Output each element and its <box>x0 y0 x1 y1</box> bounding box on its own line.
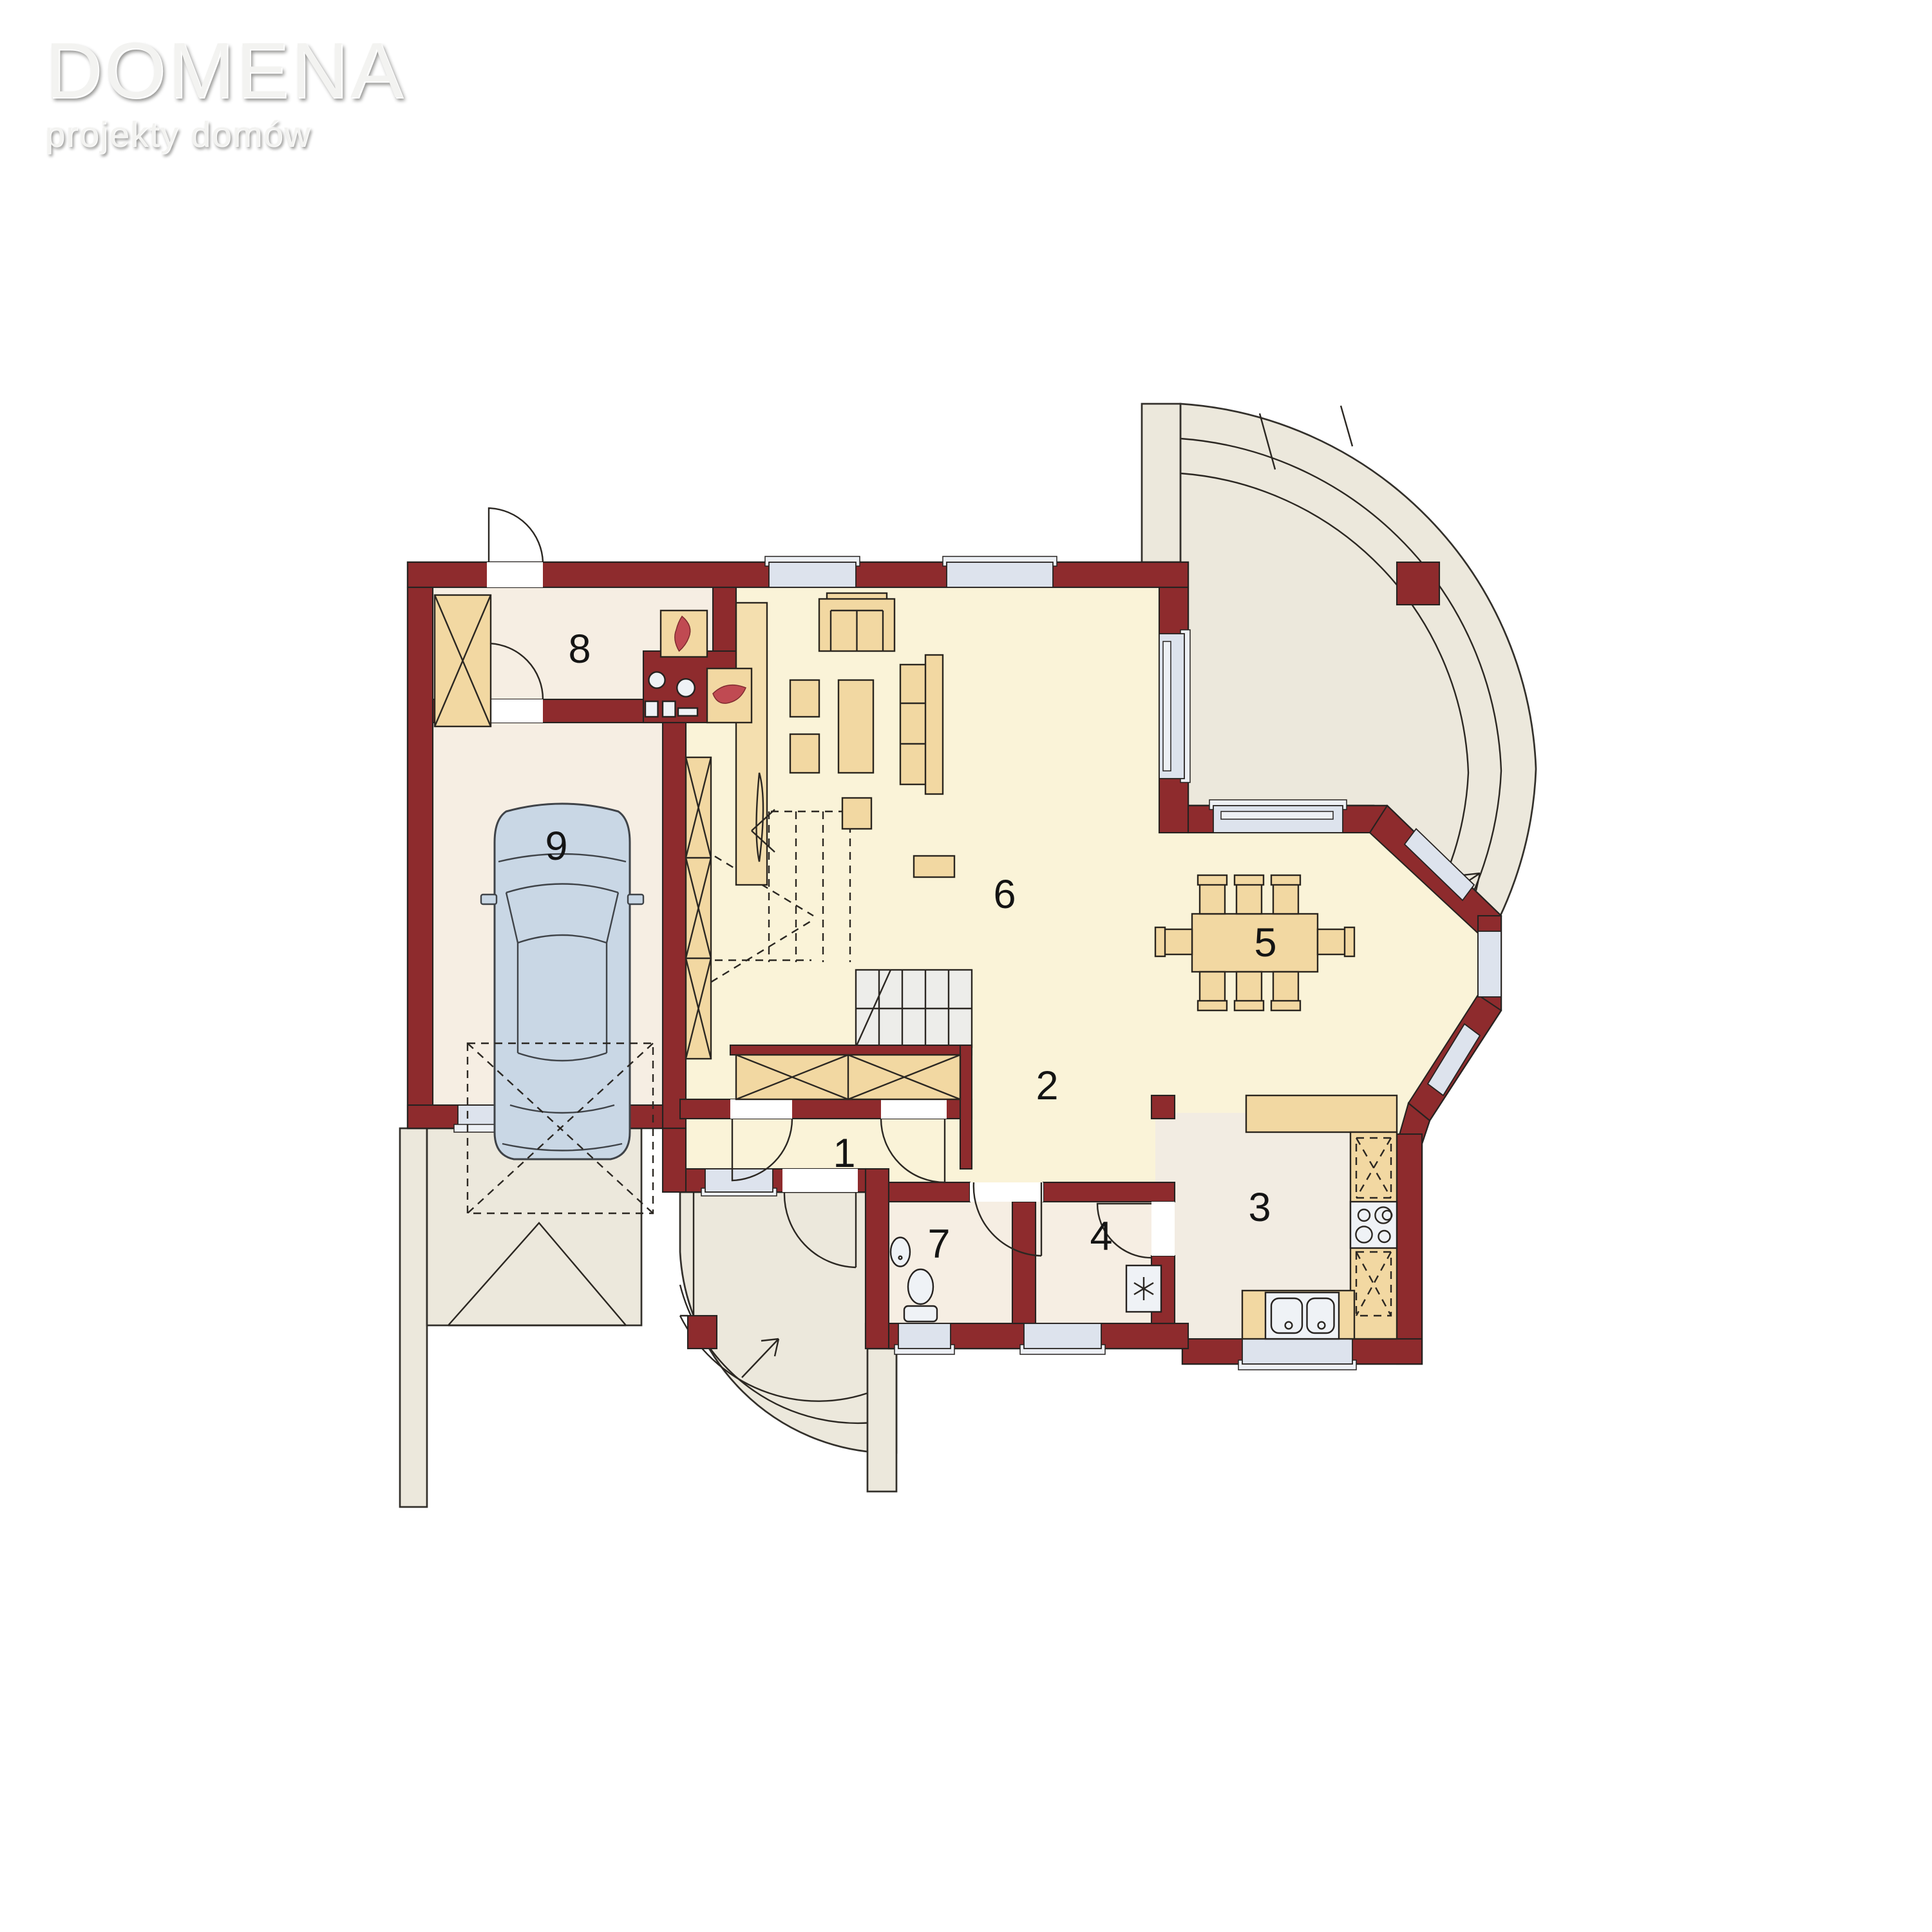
furnace-box <box>645 701 658 717</box>
wall-pantry-north <box>1043 1182 1175 1202</box>
kitchen-sink <box>1265 1293 1339 1339</box>
furnace-vent <box>678 708 697 716</box>
wardrobe-boilerroom <box>435 595 491 726</box>
driveway <box>400 1128 641 1507</box>
room-label-kitchen: 3 <box>1248 1185 1271 1230</box>
room-label-vestibule: 1 <box>833 1131 855 1176</box>
car-mirror <box>481 895 497 904</box>
wall-under-stairs <box>730 1045 972 1055</box>
wall-hall-west-pier <box>960 1045 972 1169</box>
wall-wc-west <box>866 1169 889 1349</box>
porch-pillar <box>867 1349 896 1492</box>
tv-bench <box>914 856 954 877</box>
wall-wc-north-a <box>889 1182 970 1202</box>
wc-window <box>898 1323 951 1349</box>
slider-leaf <box>1221 811 1333 819</box>
coffee-table <box>838 680 873 773</box>
room-label-living: 6 <box>993 872 1016 917</box>
entrance-porch <box>680 1192 896 1492</box>
room-label-boilerroom: 8 <box>568 627 591 672</box>
room-label-garage: 9 <box>545 824 567 869</box>
garage-cabinet <box>686 757 711 1059</box>
sofa-two-seat <box>819 593 895 651</box>
sofa-three-seat <box>900 655 943 794</box>
terrace-side-wall <box>1142 404 1180 562</box>
bay-east-window <box>1478 931 1501 997</box>
wc-door-opening <box>970 1182 1043 1202</box>
kitchen-peninsula-counter <box>1246 1095 1397 1132</box>
pantry-door-opening <box>1151 1202 1175 1256</box>
terrace-column <box>1397 562 1439 605</box>
living-north-window-2 <box>947 562 1053 587</box>
furnace-dial <box>677 679 695 697</box>
room-label-dining: 5 <box>1254 920 1276 965</box>
pantry-window <box>1024 1323 1101 1349</box>
car-mirror <box>628 895 643 904</box>
boilerroom-ext-door-swing <box>489 508 543 562</box>
furnace-box <box>663 701 676 717</box>
furnace-dial <box>649 672 665 688</box>
kitchen-window <box>1242 1339 1352 1364</box>
room-label-hall: 2 <box>1036 1063 1058 1108</box>
stove <box>1350 1202 1397 1248</box>
wall-kitchen-east <box>1397 1134 1422 1364</box>
boilerroom-ext-door-opening <box>487 562 543 587</box>
driveway-side-strip <box>400 1128 427 1507</box>
wall-vestibule-west <box>663 1128 686 1192</box>
wall-pantry-west <box>1012 1202 1036 1323</box>
vestibule-door-b-opening <box>881 1099 947 1119</box>
floor-plan: 1 2 3 4 5 6 7 8 9 <box>0 0 1932 1932</box>
chimney-strip <box>736 603 767 885</box>
room-label-wc: 7 <box>927 1222 950 1267</box>
wall-kitchen-pier <box>1151 1095 1175 1119</box>
vestibule-door-a-opening <box>730 1099 792 1119</box>
side-table <box>790 734 819 773</box>
room-label-pantry: 4 <box>1090 1214 1112 1259</box>
fridge <box>1126 1265 1161 1312</box>
small-table <box>842 798 871 829</box>
wc-sink <box>891 1238 910 1267</box>
terrace-door-leaf <box>1163 641 1171 771</box>
living-north-window-1 <box>769 562 856 587</box>
porch-column <box>688 1316 717 1349</box>
boilerroom-door-opening <box>487 699 543 723</box>
wall-garage-east <box>663 723 686 1128</box>
hall-wardrobe <box>736 1055 960 1099</box>
wall-west <box>408 587 433 1128</box>
side-table <box>790 680 819 717</box>
